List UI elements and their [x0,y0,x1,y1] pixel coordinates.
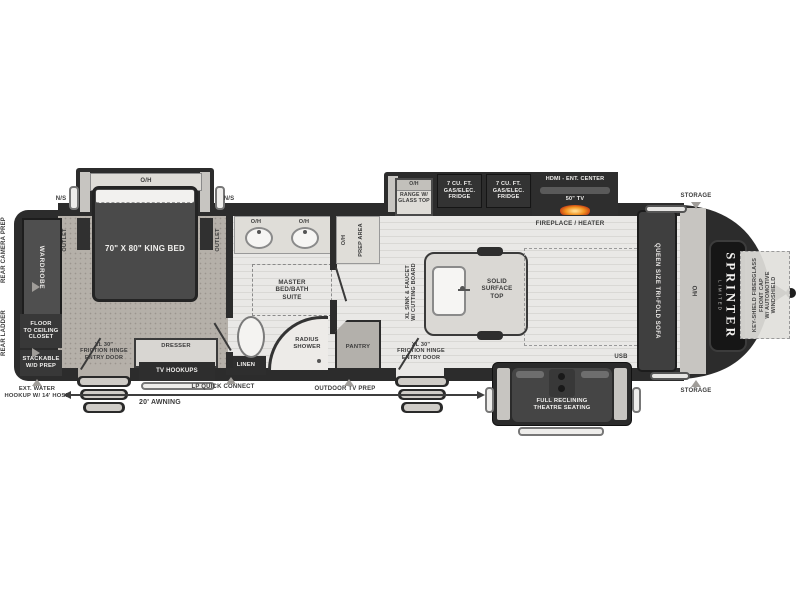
storage-door-top [645,205,687,213]
king-bed-label: 70" X 80" KING BED [95,244,195,253]
entry-steps-2 [395,376,449,387]
vanity-oh-right: O/H [291,219,317,225]
brand-label: SPRINTER [723,252,738,339]
front-cap-label: KEY-SHIELD FIBERGLASS FRONT CAP W/ AUTOM… [752,258,778,332]
storage-label-top: STORAGE [674,193,718,200]
awning-arrow-left [63,391,71,399]
bath-wall-upper [226,216,233,318]
cupholder-2 [558,385,565,392]
rear-camera-arrow [32,282,40,292]
island-sink-label: XL SINK & FAUCET W/ CUTTING BOARD [405,255,421,329]
bath-sink-left [245,227,273,249]
shower-head-dot [317,359,321,363]
vanity-oh-left: O/H [243,219,269,225]
storage-arrow-bottom [691,380,701,387]
fireplace-flame-icon [560,205,590,215]
outlet-label-left: OUTLET [62,223,74,257]
entry-steps-2c [401,402,443,413]
hdmi-label: HDMI - ENT. CENTER [532,176,618,182]
tri-fold-sofa: QUEEN SIZE TRI-FOLD SOFA [637,210,677,372]
nightstand-label-right: N/S [216,196,242,203]
bed-slide-rail-left [80,172,90,212]
king-bed: 70" X 80" KING BED [92,186,198,302]
theatre-handle-right [632,387,641,413]
usb-label: USB [606,354,636,361]
floor-to-ceiling-closet: FLOOR TO CEILING CLOSET [20,314,62,348]
fridge-2-label: 7 CU. FT. GAS/ELEC. FRIDGE [493,181,524,200]
fireplace-label: FIREPLACE / HEATER [520,220,620,227]
theatre-label: FULL RECLINING THEATRE SEATING [512,398,612,412]
sofa-bed-footprint [524,248,652,346]
range-label: RANGE W/ GLASS TOP [397,192,431,204]
washer-dryer-prep: STACKABLE W/D PREP [20,350,62,376]
faucet-dot-right [303,230,307,234]
wd-label: STACKABLE W/D PREP [22,356,59,370]
bed-pillows [96,190,194,203]
entry-steps-1 [77,376,131,387]
rear-ladder-arrow [32,348,40,358]
front-cap-callout: KEY-SHIELD FIBERGLASS FRONT CAP W/ AUTOM… [740,251,790,339]
entry-door-1-label: XL 30" FRICTION HINGE ENTRY DOOR [71,342,137,361]
island-sink [432,266,466,316]
tv-screen [540,187,610,194]
faucet-dot-left [257,230,261,234]
cupholder-1 [558,373,565,380]
tv-hookups: TV HOOKUPS [139,362,215,381]
dresser-label: DRESSER [136,343,216,350]
wardrobe: WARDROBE [22,218,62,316]
island-handle-bottom [477,331,503,340]
awning-label: 20' AWNING [118,399,202,407]
pantry-label: PANTRY [337,344,379,351]
awning-line [70,394,478,396]
fridge-1-label: 7 CU. FT. GAS/ELEC. FRIDGE [444,181,475,200]
prep-area-label: PREP AREA [358,210,370,270]
toilet [237,316,265,358]
radius-shower-label: RADIUS SHOWER [285,337,329,351]
theatre-rail-right [614,368,627,420]
pantry: PANTRY [335,320,381,370]
floorplan: WARDROBE FLOOR TO CEILING CLOSET STACKAB… [0,0,800,600]
theatre-armrest-left [516,371,544,378]
lp-quick-connect-label: LP QUICK CONNECT [180,384,266,391]
front-oh-label: O/H [690,286,696,297]
fridge-2: 7 CU. FT. GAS/ELEC. FRIDGE [486,174,531,208]
outdoor-tv-label: OUTDOOR TV PREP [302,386,388,393]
front-overhead-cabinet: O/H [680,208,706,374]
range: O/H RANGE W/ GLASS TOP [395,178,433,216]
outdoor-tv-arrow [344,379,354,386]
theatre-handle-bottom [518,427,604,436]
lp-arrow [226,377,236,384]
storage-door-bottom [650,372,690,380]
bath-sink-right [291,227,319,249]
sprinter-badge-text: SPRINTER LIMITED [718,252,738,339]
nightstand-label-left: N/S [48,196,74,203]
nightstand-right [200,218,213,250]
bed-oh-label: O/H [140,178,151,185]
storage-arrow-top [691,202,701,209]
island-faucet-dot [460,286,465,291]
theatre-handle-left [485,387,494,413]
linen-label: LINEN [237,362,255,369]
prep-oh-label: O/H [341,223,353,257]
range-oh-label: O/H [409,182,419,188]
nightstand-left [77,218,90,250]
fridge-1: 7 CU. FT. GAS/ELEC. FRIDGE [437,174,482,208]
ext-water-arrow [32,379,42,386]
bath-wall-lower [226,352,233,368]
island-top-label: SOLID SURFACE TOP [468,278,526,300]
theatre-rail-left [497,368,510,420]
entry-door-2-label: XL 30" FRICTION HINGE ENTRY DOOR [389,342,453,361]
rear-camera-prep-label: REAR CAMERA PREP [1,205,13,295]
storage-label-bottom: STORAGE [674,388,718,395]
theatre-armrest-right [581,371,609,378]
theatre-seats: FULL RECLINING THEATRE SEATING [512,368,612,422]
rear-ladder-label: REAR LADDER [1,288,13,378]
master-suite-label: MASTER BED/BATH SUITE [275,279,308,301]
tv-label: 50" TV [532,196,618,202]
island-handle-top [477,247,503,256]
awning-arrow-right [477,391,485,399]
bath-kitchen-wall-lower [330,300,337,334]
range-oh-strip: O/H [397,180,431,191]
master-suite-zone: MASTER BED/BATH SUITE [252,264,332,316]
closet-label: FLOOR TO CEILING CLOSET [23,321,58,341]
sofa-label: QUEEN SIZE TRI-FOLD SOFA [654,243,660,339]
tv-hookups-label: TV HOOKUPS [156,368,198,375]
entertainment-center: HDMI - ENT. CENTER 50" TV [532,172,618,216]
